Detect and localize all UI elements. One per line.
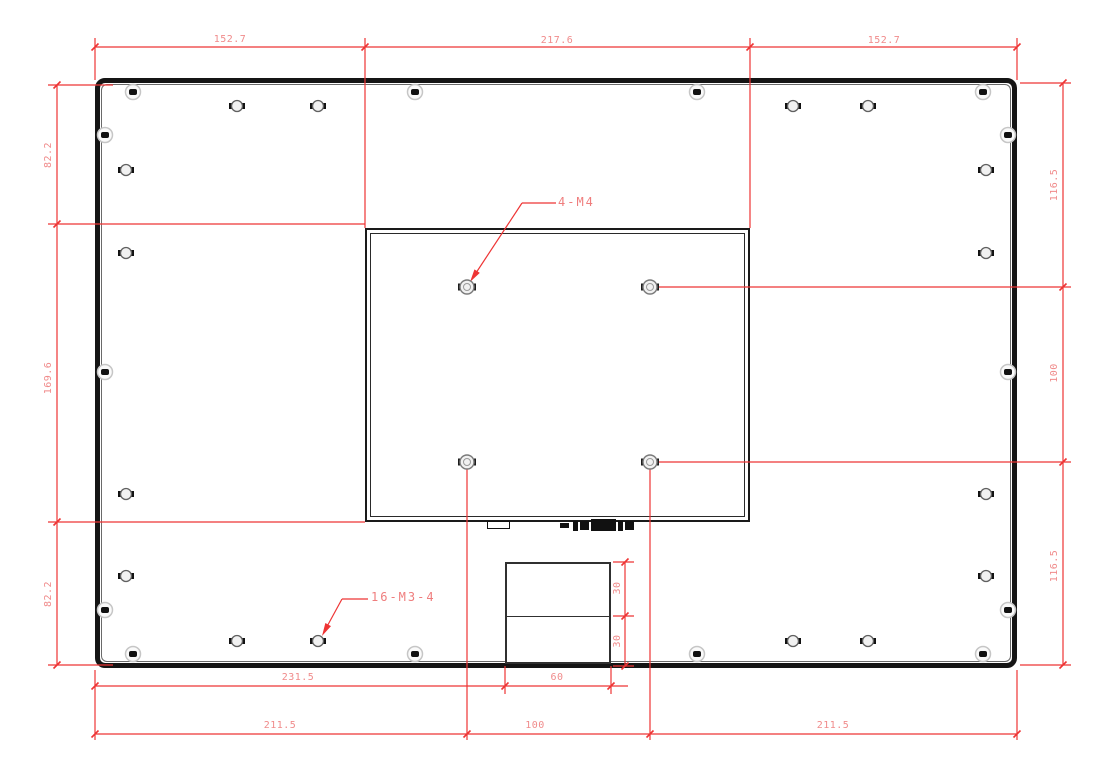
tick-mark	[54, 519, 61, 526]
dim-left-middle: 169.6	[44, 362, 54, 395]
connector-port	[487, 521, 510, 529]
stand-bracket	[505, 562, 611, 664]
dim-bottom-outer-left: 211.5	[264, 721, 297, 731]
vesa-plate	[365, 228, 750, 522]
tick-mark	[1014, 44, 1021, 51]
tick-mark	[1060, 284, 1067, 291]
connector-port	[560, 523, 569, 528]
dim-bottom-inner-left: 231.5	[282, 673, 315, 683]
tick-mark	[92, 731, 99, 738]
dim-box-upper: 30	[613, 581, 623, 594]
tick-mark	[464, 731, 471, 738]
connector-port	[625, 521, 634, 530]
tick-mark	[1060, 80, 1067, 87]
vesa-plate-inner-line	[370, 233, 745, 517]
drawing-canvas: 152.7 217.6 152.7 82.2 169.6 82.2 116.5 …	[0, 0, 1105, 765]
connector-port	[591, 519, 616, 531]
tick-mark	[54, 82, 61, 89]
stand-bracket-divider	[507, 616, 609, 617]
vesa-holes-label: 4-M4	[558, 196, 595, 208]
dim-bottom-outer-right: 211.5	[817, 721, 850, 731]
dim-box-lower: 30	[613, 634, 623, 647]
dim-bottom-inner-box: 60	[550, 673, 563, 683]
dim-left-bottom: 82.2	[44, 581, 54, 607]
tick-mark	[1060, 459, 1067, 466]
dim-top-right: 152.7	[868, 36, 901, 46]
tick-mark	[362, 44, 369, 51]
tick-mark	[502, 683, 509, 690]
tick-mark	[608, 683, 615, 690]
mount-holes-label: 16-M3-4	[371, 591, 436, 603]
dim-top-left: 152.7	[214, 35, 247, 45]
tick-mark	[1014, 731, 1021, 738]
tick-mark	[54, 662, 61, 669]
tick-mark	[747, 44, 754, 51]
dim-top-center: 217.6	[541, 36, 574, 46]
dim-right-bottom: 116.5	[1050, 550, 1060, 583]
tick-mark	[54, 221, 61, 228]
dim-right-middle: 100	[1050, 363, 1060, 383]
tick-mark	[92, 683, 99, 690]
dim-right-top: 116.5	[1050, 169, 1060, 202]
tick-mark	[647, 731, 654, 738]
dim-left-top: 82.2	[44, 142, 54, 168]
connector-port	[580, 521, 589, 530]
tick-mark	[92, 44, 99, 51]
tick-mark	[1060, 662, 1067, 669]
connector-port	[573, 521, 578, 531]
connector-port	[618, 521, 623, 531]
dim-bottom-outer-center: 100	[525, 721, 545, 731]
